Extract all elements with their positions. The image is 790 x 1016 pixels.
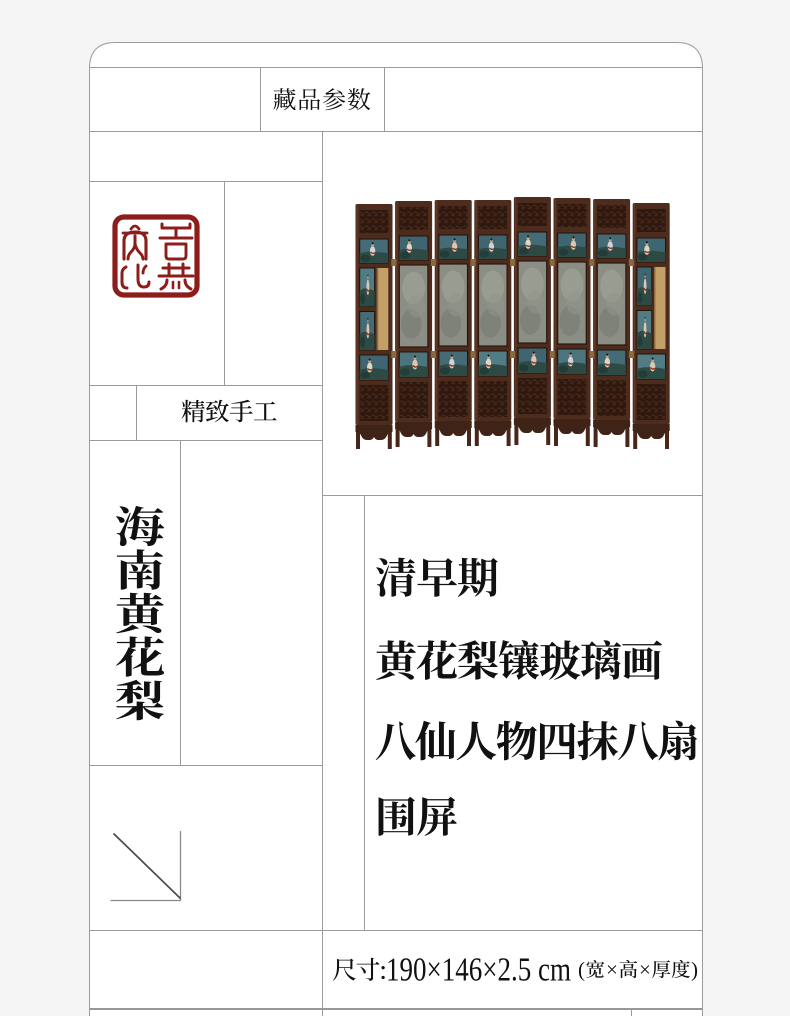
svg-text:×: × — [639, 958, 651, 982]
svg-text:(: ( — [578, 958, 585, 982]
svg-text:190×146×2.5 cm: 190×146×2.5 cm — [386, 952, 571, 989]
svg-text:): ) — [691, 958, 698, 982]
svg-text:×: × — [606, 958, 618, 982]
